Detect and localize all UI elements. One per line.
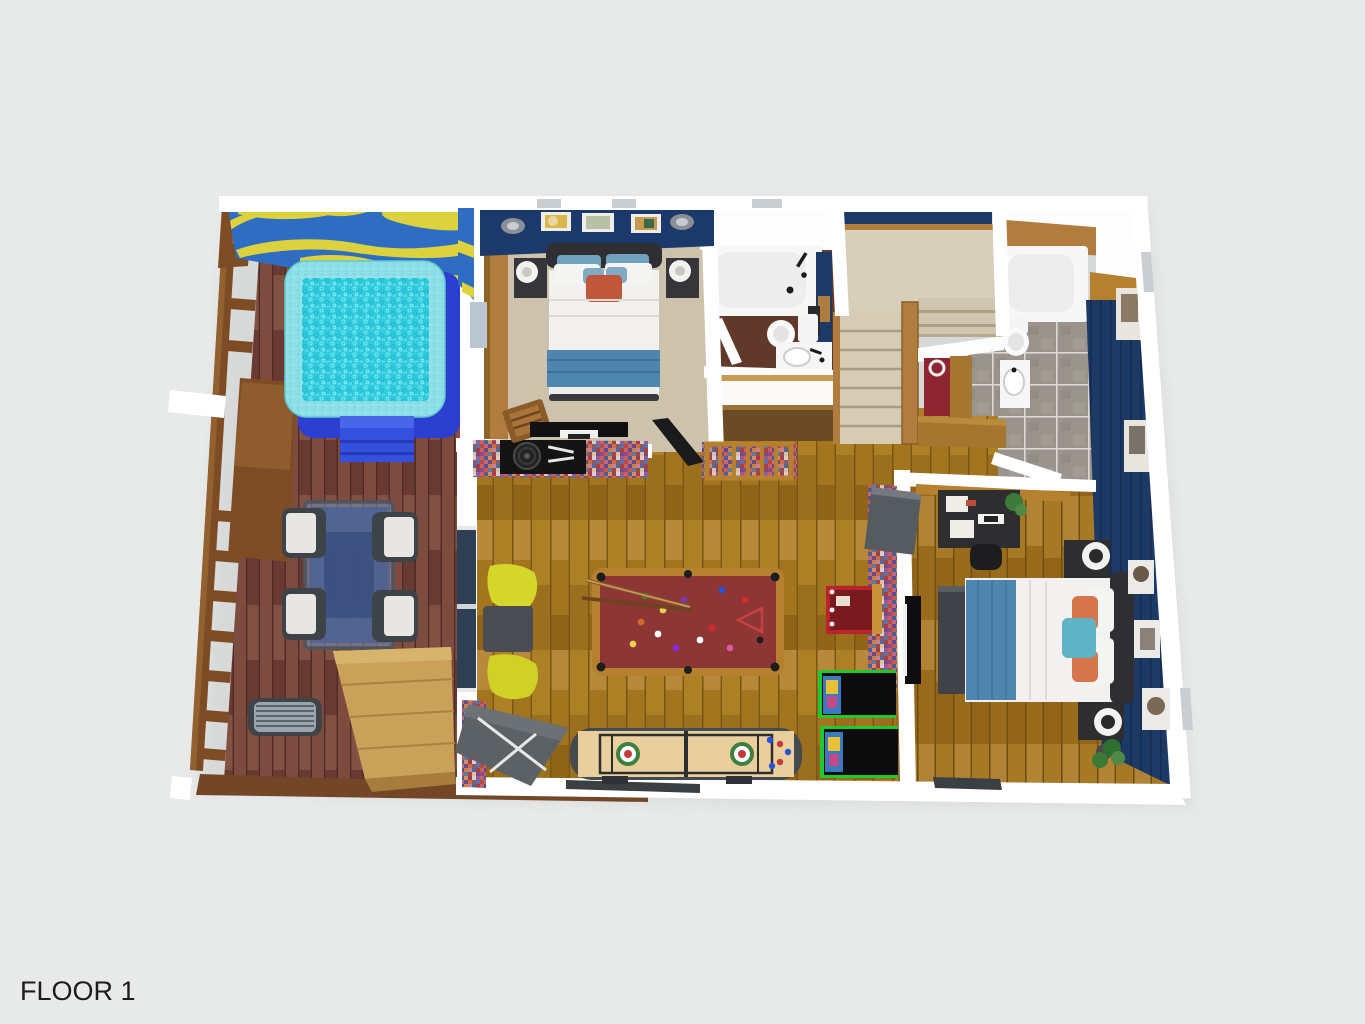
svg-text:FLOOR 1: FLOOR 1 [20,976,136,1006]
